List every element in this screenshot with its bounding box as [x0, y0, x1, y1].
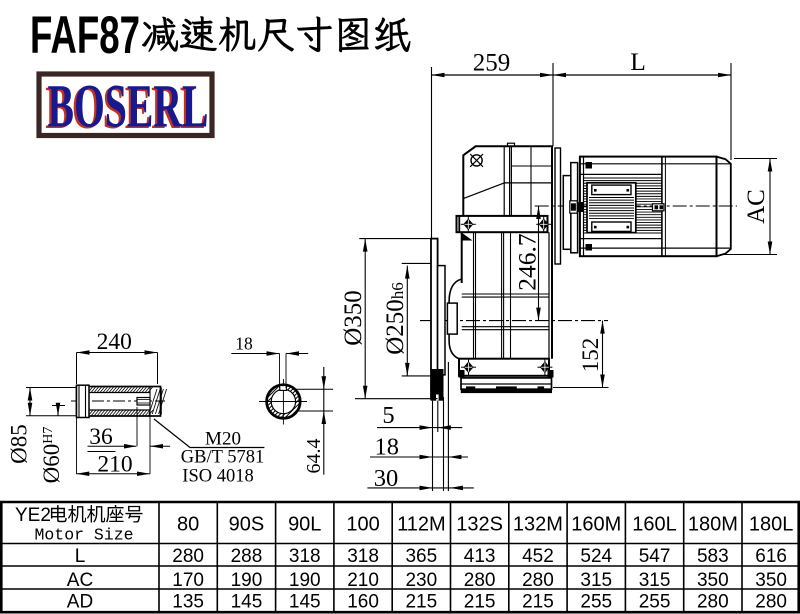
svg-text:132M: 132M — [513, 514, 563, 536]
svg-text:280: 280 — [172, 546, 204, 567]
svg-text:145: 145 — [289, 592, 321, 613]
svg-text:90L: 90L — [288, 514, 321, 536]
svg-text:YE2: YE2 — [15, 505, 51, 526]
svg-text:FAF87: FAF87 — [30, 6, 140, 65]
svg-text:246.7: 246.7 — [513, 233, 542, 291]
svg-text:210: 210 — [347, 570, 379, 591]
svg-text:315: 315 — [580, 570, 612, 591]
svg-text:Ø350: Ø350 — [340, 290, 367, 346]
svg-text:160: 160 — [347, 592, 379, 613]
svg-text:280: 280 — [697, 592, 729, 613]
svg-text:90S: 90S — [229, 514, 265, 536]
svg-text:AD: AD — [67, 592, 93, 613]
svg-text:GB/T 5781: GB/T 5781 — [181, 448, 264, 468]
svg-text:Ø250h6: Ø250h6 — [382, 282, 409, 355]
svg-text:365: 365 — [405, 546, 437, 567]
svg-text:100: 100 — [346, 514, 379, 536]
svg-text:132S: 132S — [456, 514, 503, 536]
svg-text:280: 280 — [755, 592, 787, 613]
svg-text:ISO 4018: ISO 4018 — [182, 466, 253, 486]
svg-text:280: 280 — [522, 570, 554, 591]
svg-text:255: 255 — [580, 592, 612, 613]
svg-text:170: 170 — [172, 570, 204, 591]
svg-text:318: 318 — [289, 546, 321, 567]
svg-text:583: 583 — [697, 546, 729, 567]
svg-text:190: 190 — [289, 570, 321, 591]
svg-text:AC: AC — [67, 570, 93, 591]
svg-text:413: 413 — [464, 546, 496, 567]
svg-text:524: 524 — [580, 546, 612, 567]
svg-text:315: 315 — [639, 570, 671, 591]
svg-text:18: 18 — [375, 434, 400, 461]
svg-text:30: 30 — [374, 465, 399, 492]
svg-text:145: 145 — [231, 592, 263, 613]
svg-text:616: 616 — [755, 546, 787, 567]
svg-text:Motor Size: Motor Size — [34, 526, 133, 545]
svg-text:112M: 112M — [397, 514, 446, 536]
svg-text:255: 255 — [639, 592, 671, 613]
svg-text:64.4: 64.4 — [303, 439, 325, 474]
svg-text:18: 18 — [235, 334, 253, 354]
svg-text:215: 215 — [405, 592, 437, 613]
svg-text:36: 36 — [89, 424, 113, 450]
svg-text:80: 80 — [177, 514, 199, 536]
svg-text:288: 288 — [231, 546, 263, 567]
svg-text:152: 152 — [578, 338, 603, 373]
svg-text:L: L — [75, 546, 86, 567]
svg-text:135: 135 — [172, 592, 204, 613]
svg-text:Ø60H7: Ø60H7 — [39, 427, 64, 484]
svg-text:180M: 180M — [688, 514, 738, 536]
svg-text:160M: 160M — [571, 514, 621, 536]
svg-text:M20: M20 — [205, 429, 241, 450]
svg-text:318: 318 — [347, 546, 379, 567]
svg-text:240: 240 — [97, 329, 132, 355]
svg-text:AC: AC — [743, 189, 770, 224]
svg-text:215: 215 — [522, 592, 554, 613]
svg-text:L: L — [630, 47, 646, 76]
svg-text:190: 190 — [231, 570, 263, 591]
svg-text:210: 210 — [97, 452, 132, 478]
svg-text:BOSERL: BOSERL — [48, 74, 209, 141]
svg-text:280: 280 — [464, 570, 496, 591]
svg-text:5: 5 — [382, 402, 394, 429]
svg-text:230: 230 — [405, 570, 437, 591]
svg-text:350: 350 — [755, 570, 787, 591]
svg-text:180L: 180L — [749, 514, 794, 536]
svg-text:Ø85: Ø85 — [7, 424, 32, 464]
svg-text:547: 547 — [639, 546, 671, 567]
svg-text:350: 350 — [697, 570, 729, 591]
svg-text:452: 452 — [522, 546, 554, 567]
svg-text:160L: 160L — [632, 514, 677, 536]
svg-text:259: 259 — [473, 50, 511, 77]
svg-text:215: 215 — [464, 592, 496, 613]
